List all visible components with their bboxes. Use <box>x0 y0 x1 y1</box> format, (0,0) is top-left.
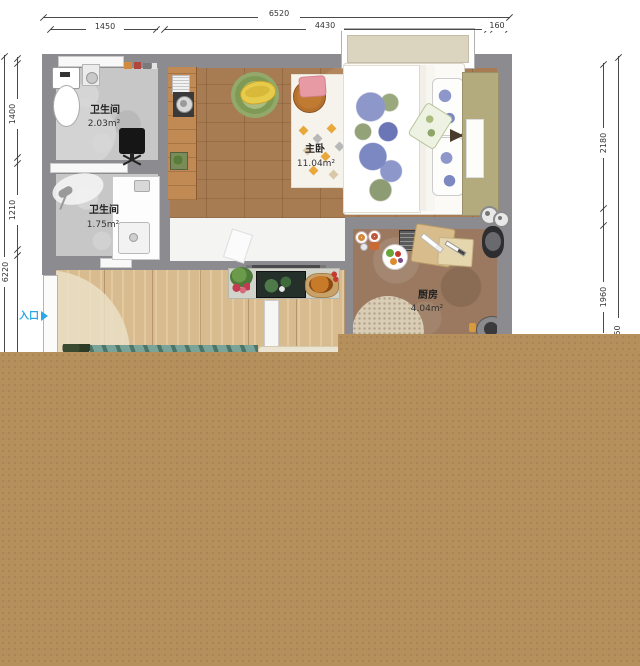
stove-wok[interactable] <box>476 316 497 334</box>
entrance-door-swing <box>56 270 130 352</box>
roast-dish[interactable] <box>309 276 333 293</box>
fruit-green <box>386 249 394 257</box>
kitchen-label: 厨房 <box>398 290 458 302</box>
washer-drum-center <box>180 100 187 107</box>
bed-duvet-floral <box>343 65 421 213</box>
entrance-label: 入口 <box>19 311 39 322</box>
kitchen-area: 4.04m² <box>397 304 457 315</box>
cooker-lid <box>485 232 501 251</box>
dining-dish <box>370 242 379 250</box>
fruit-plate[interactable] <box>382 244 408 270</box>
fruit-orange <box>390 258 397 265</box>
fruit-purple <box>398 258 403 263</box>
banana-bench-shade <box>244 84 271 99</box>
dim-bath-width: 1450 <box>86 22 124 32</box>
shelf-item-gray <box>143 63 151 69</box>
floorplan-canvas: 6520 1450 4430 160 6220 1400 1210 2180 1… <box>0 0 640 666</box>
heater-drum <box>86 72 98 84</box>
bedroom-window-glass <box>347 35 469 63</box>
nightstand[interactable] <box>466 119 484 178</box>
hex-tile <box>327 124 337 134</box>
tick <box>153 26 160 33</box>
bathroom2-area: 1.75m² <box>73 220 133 231</box>
dim-bath1-height: 1400 <box>8 99 18 129</box>
dim-total-height: 6220 <box>1 257 11 287</box>
sink-faucet <box>134 180 150 192</box>
bedroom-label: 主卧 <box>285 144 345 156</box>
bedroom-area: 11.04m² <box>286 159 346 170</box>
spiral-dot <box>485 211 490 216</box>
hex-tile <box>329 170 339 180</box>
console-flowers <box>232 283 250 295</box>
hex-tile <box>299 126 309 136</box>
dim-corner-width: 160 <box>482 21 512 31</box>
dim-line-total-left <box>4 55 5 352</box>
sink-drain <box>129 233 138 242</box>
dining-cup <box>360 243 368 251</box>
area-rug[interactable] <box>90 345 258 352</box>
shelf-item-white <box>152 63 157 69</box>
hex-tile <box>313 134 323 144</box>
tick <box>506 14 513 21</box>
pressure-cooker[interactable] <box>482 226 504 258</box>
wok-center <box>484 322 497 334</box>
tan-overlay-lower <box>0 352 640 666</box>
shelf-item-red <box>134 62 141 69</box>
wall-heater[interactable] <box>82 64 100 86</box>
pink-stool[interactable] <box>298 75 326 98</box>
wall-right <box>497 54 512 334</box>
dim-bath2-height: 1210 <box>8 195 18 225</box>
bathroom1-area: 2.03m² <box>74 119 134 130</box>
dim-total-width: 6520 <box>258 9 300 19</box>
corridor-floor[interactable] <box>168 218 345 261</box>
bath-divider-door[interactable] <box>50 163 128 173</box>
toilet-tank-button <box>60 72 70 77</box>
wall-kitchen-left <box>345 229 353 334</box>
washing-machine[interactable] <box>173 92 194 117</box>
plant-leaves <box>172 154 184 166</box>
dim-bedroom-width: 4430 <box>306 21 344 31</box>
dim-bedroom-height: 2180 <box>599 128 609 158</box>
stove-handle-left <box>469 323 476 332</box>
fruit-red <box>395 251 401 257</box>
spiral-dot <box>498 216 502 220</box>
sliding-door-panel[interactable] <box>264 300 279 352</box>
plant-decor[interactable] <box>62 344 92 352</box>
dining-plate <box>355 231 368 244</box>
dim-kitchen-height: 1960 <box>599 282 609 312</box>
dim-line-total-right <box>618 56 619 333</box>
bathroom2-label: 卫生间 <box>74 205 134 217</box>
shelf-item-orange <box>124 62 132 69</box>
office-chair-back[interactable] <box>119 128 145 154</box>
roast-garnish <box>331 271 339 282</box>
entrance-arrow-icon <box>41 311 48 321</box>
tv[interactable] <box>256 271 306 298</box>
potted-plant[interactable] <box>170 152 188 170</box>
bathroom1-label: 卫生间 <box>75 105 135 117</box>
pillow-bottom <box>432 137 464 196</box>
